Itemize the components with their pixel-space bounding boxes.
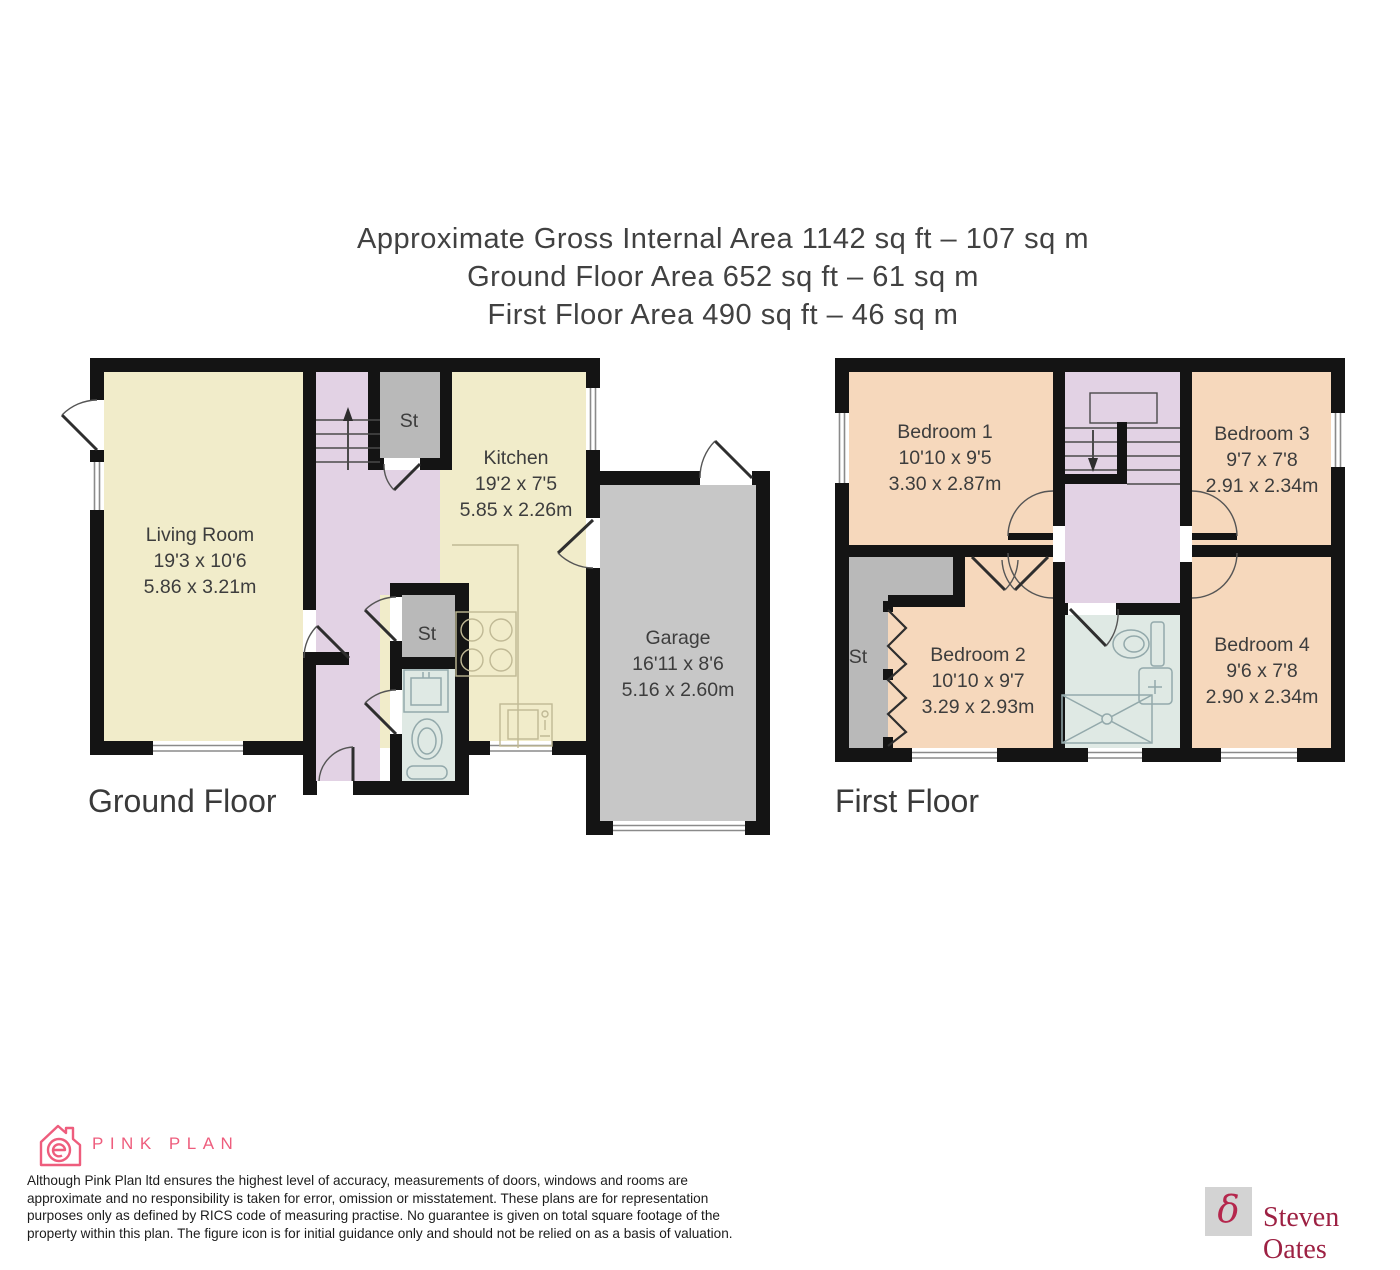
bedroom3-size-m: 2.91 x 2.34m — [1206, 475, 1319, 497]
disclaimer-text: Although Pink Plan ltd ensures the highe… — [27, 1172, 787, 1242]
bedroom4-name: Bedroom 4 — [1214, 634, 1310, 656]
bedroom1-size-ft: 10'10 x 9'5 — [898, 447, 991, 469]
gross-area-line: Approximate Gross Internal Area 1142 sq … — [46, 220, 1400, 258]
steven-oates-name: Steven Oates — [1263, 1202, 1400, 1266]
storage-ff-label: St — [849, 646, 868, 668]
disclaimer-line: Although Pink Plan ltd ensures the highe… — [27, 1172, 787, 1190]
wc-floor — [402, 669, 455, 781]
first-floor-title: First Floor — [835, 783, 979, 819]
floorplan-page: Approximate Gross Internal Area 1142 sq … — [0, 0, 1400, 1270]
kitchen-size-m: 5.85 x 2.26m — [460, 499, 573, 521]
bedroom2-size-ft: 10'10 x 9'7 — [931, 670, 1024, 692]
first-floor-area-line: First Floor Area 490 sq ft – 46 sq m — [46, 296, 1400, 334]
first-floor-plan: Bedroom 1 10'10 x 9'5 3.30 x 2.87m Bedro… — [800, 340, 1380, 840]
delta-glyph-icon: δ — [1217, 1191, 1239, 1228]
bedroom4-size-m: 2.90 x 2.34m — [1206, 686, 1319, 708]
bedroom2-name: Bedroom 2 — [930, 644, 1025, 666]
bedroom1-size-m: 3.30 x 2.87m — [889, 473, 1002, 495]
garage-size-ft: 16'11 x 8'6 — [632, 653, 724, 675]
bathroom-floor — [1053, 610, 1180, 755]
landing-floor — [1053, 365, 1180, 610]
kitchen-name: Kitchen — [483, 447, 548, 469]
ground-floor-title: Ground Floor — [88, 783, 277, 819]
garage-size-m: 5.16 x 2.60m — [622, 679, 735, 701]
kitchen-size-ft: 19'2 x 7'5 — [475, 473, 557, 495]
disclaimer-line: property within this plan. The figure ic… — [27, 1225, 787, 1243]
ground-floor-plan: Living Room 19'3 x 10'6 5.86 x 3.21m Kit… — [40, 340, 800, 860]
storage-mid-label: St — [418, 623, 437, 645]
bedroom2-size-m: 3.29 x 2.93m — [922, 696, 1035, 718]
bedroom3-size-ft: 9'7 x 7'8 — [1226, 449, 1297, 471]
area-summary: Approximate Gross Internal Area 1142 sq … — [46, 220, 1400, 334]
disclaimer-line: approximate and no responsibility is tak… — [27, 1190, 787, 1208]
living-room-size-ft: 19'3 x 10'6 — [153, 550, 246, 572]
bedroom1-name: Bedroom 1 — [897, 421, 992, 443]
disclaimer-line: purposes only as defined by RICS code of… — [27, 1207, 787, 1225]
living-room-size-m: 5.86 x 3.21m — [144, 576, 257, 598]
steven-oates-logo: δ — [1205, 1187, 1252, 1236]
bedroom4-size-ft: 9'6 x 7'8 — [1226, 660, 1297, 682]
storage-top-label: St — [400, 410, 419, 432]
bedroom3-name: Bedroom 3 — [1214, 423, 1309, 445]
living-room-name: Living Room — [146, 524, 254, 546]
pink-plan-house-icon — [33, 1120, 87, 1172]
garage-name: Garage — [645, 627, 710, 649]
pink-plan-brand: PINK PLAN — [92, 1134, 239, 1154]
ground-floor-area-line: Ground Floor Area 652 sq ft – 61 sq m — [46, 258, 1400, 296]
